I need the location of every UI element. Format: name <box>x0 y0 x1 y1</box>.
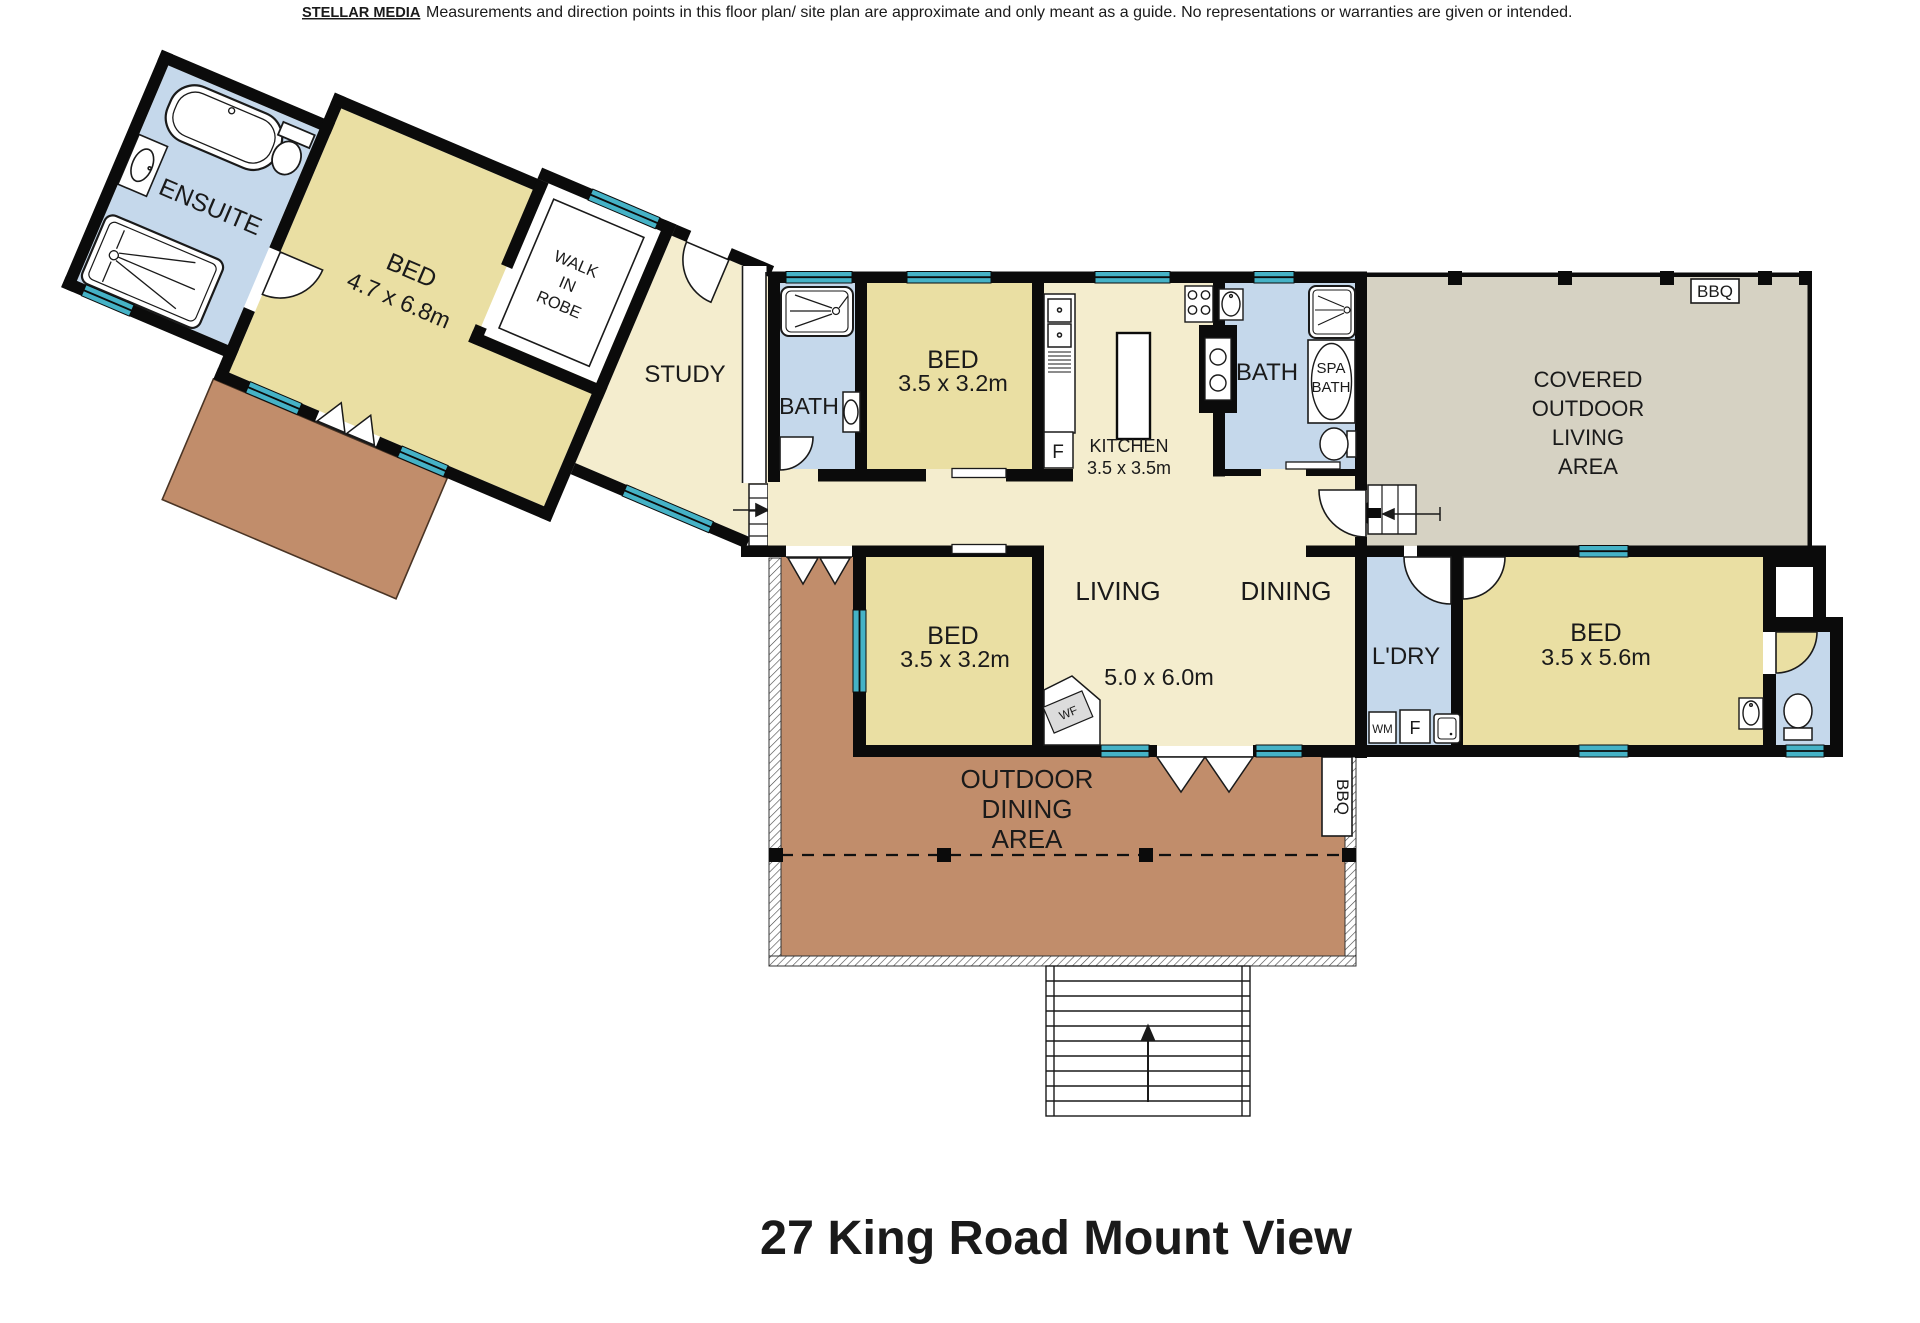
svg-text:OUTDOOR: OUTDOOR <box>1532 396 1644 421</box>
svg-text:LIVING: LIVING <box>1075 576 1160 606</box>
svg-text:Measurements and direction poi: Measurements and direction points in thi… <box>426 4 1572 21</box>
svg-text:DINING: DINING <box>1241 576 1332 606</box>
svg-text:KITCHEN: KITCHEN <box>1089 436 1168 456</box>
svg-text:COVERED: COVERED <box>1534 367 1643 392</box>
svg-text:F: F <box>1052 442 1064 463</box>
svg-text:3.5 x 3.2m: 3.5 x 3.2m <box>900 646 1010 672</box>
svg-text:3.5 x 5.6m: 3.5 x 5.6m <box>1541 644 1651 670</box>
svg-text:BATH: BATH <box>1312 379 1351 396</box>
svg-text:STUDY: STUDY <box>644 361 725 388</box>
svg-text:BBQ: BBQ <box>1333 779 1352 815</box>
svg-text:5.0 x 6.0m: 5.0 x 6.0m <box>1104 664 1214 690</box>
svg-text:STELLAR MEDIA: STELLAR MEDIA <box>302 5 421 21</box>
svg-text:3.5 x 3.5m: 3.5 x 3.5m <box>1087 458 1171 478</box>
svg-text:SPA: SPA <box>1317 360 1346 377</box>
svg-text:OUTDOOR: OUTDOOR <box>961 764 1094 794</box>
svg-text:BATH: BATH <box>1236 359 1298 386</box>
svg-text:LIVING: LIVING <box>1552 425 1624 450</box>
svg-text:WM: WM <box>1372 724 1392 736</box>
svg-text:DINING: DINING <box>982 794 1073 824</box>
svg-text:BBQ: BBQ <box>1697 282 1733 301</box>
svg-text:L'DRY: L'DRY <box>1372 643 1440 670</box>
svg-text:BED: BED <box>1570 619 1621 647</box>
svg-text:F: F <box>1410 718 1421 738</box>
svg-text:AREA: AREA <box>1558 454 1618 479</box>
svg-text:BATH: BATH <box>779 393 839 419</box>
svg-text:AREA: AREA <box>992 824 1063 854</box>
svg-text:3.5 x 3.2m: 3.5 x 3.2m <box>898 370 1008 396</box>
svg-text:27 King Road Mount View: 27 King Road Mount View <box>760 1211 1352 1265</box>
